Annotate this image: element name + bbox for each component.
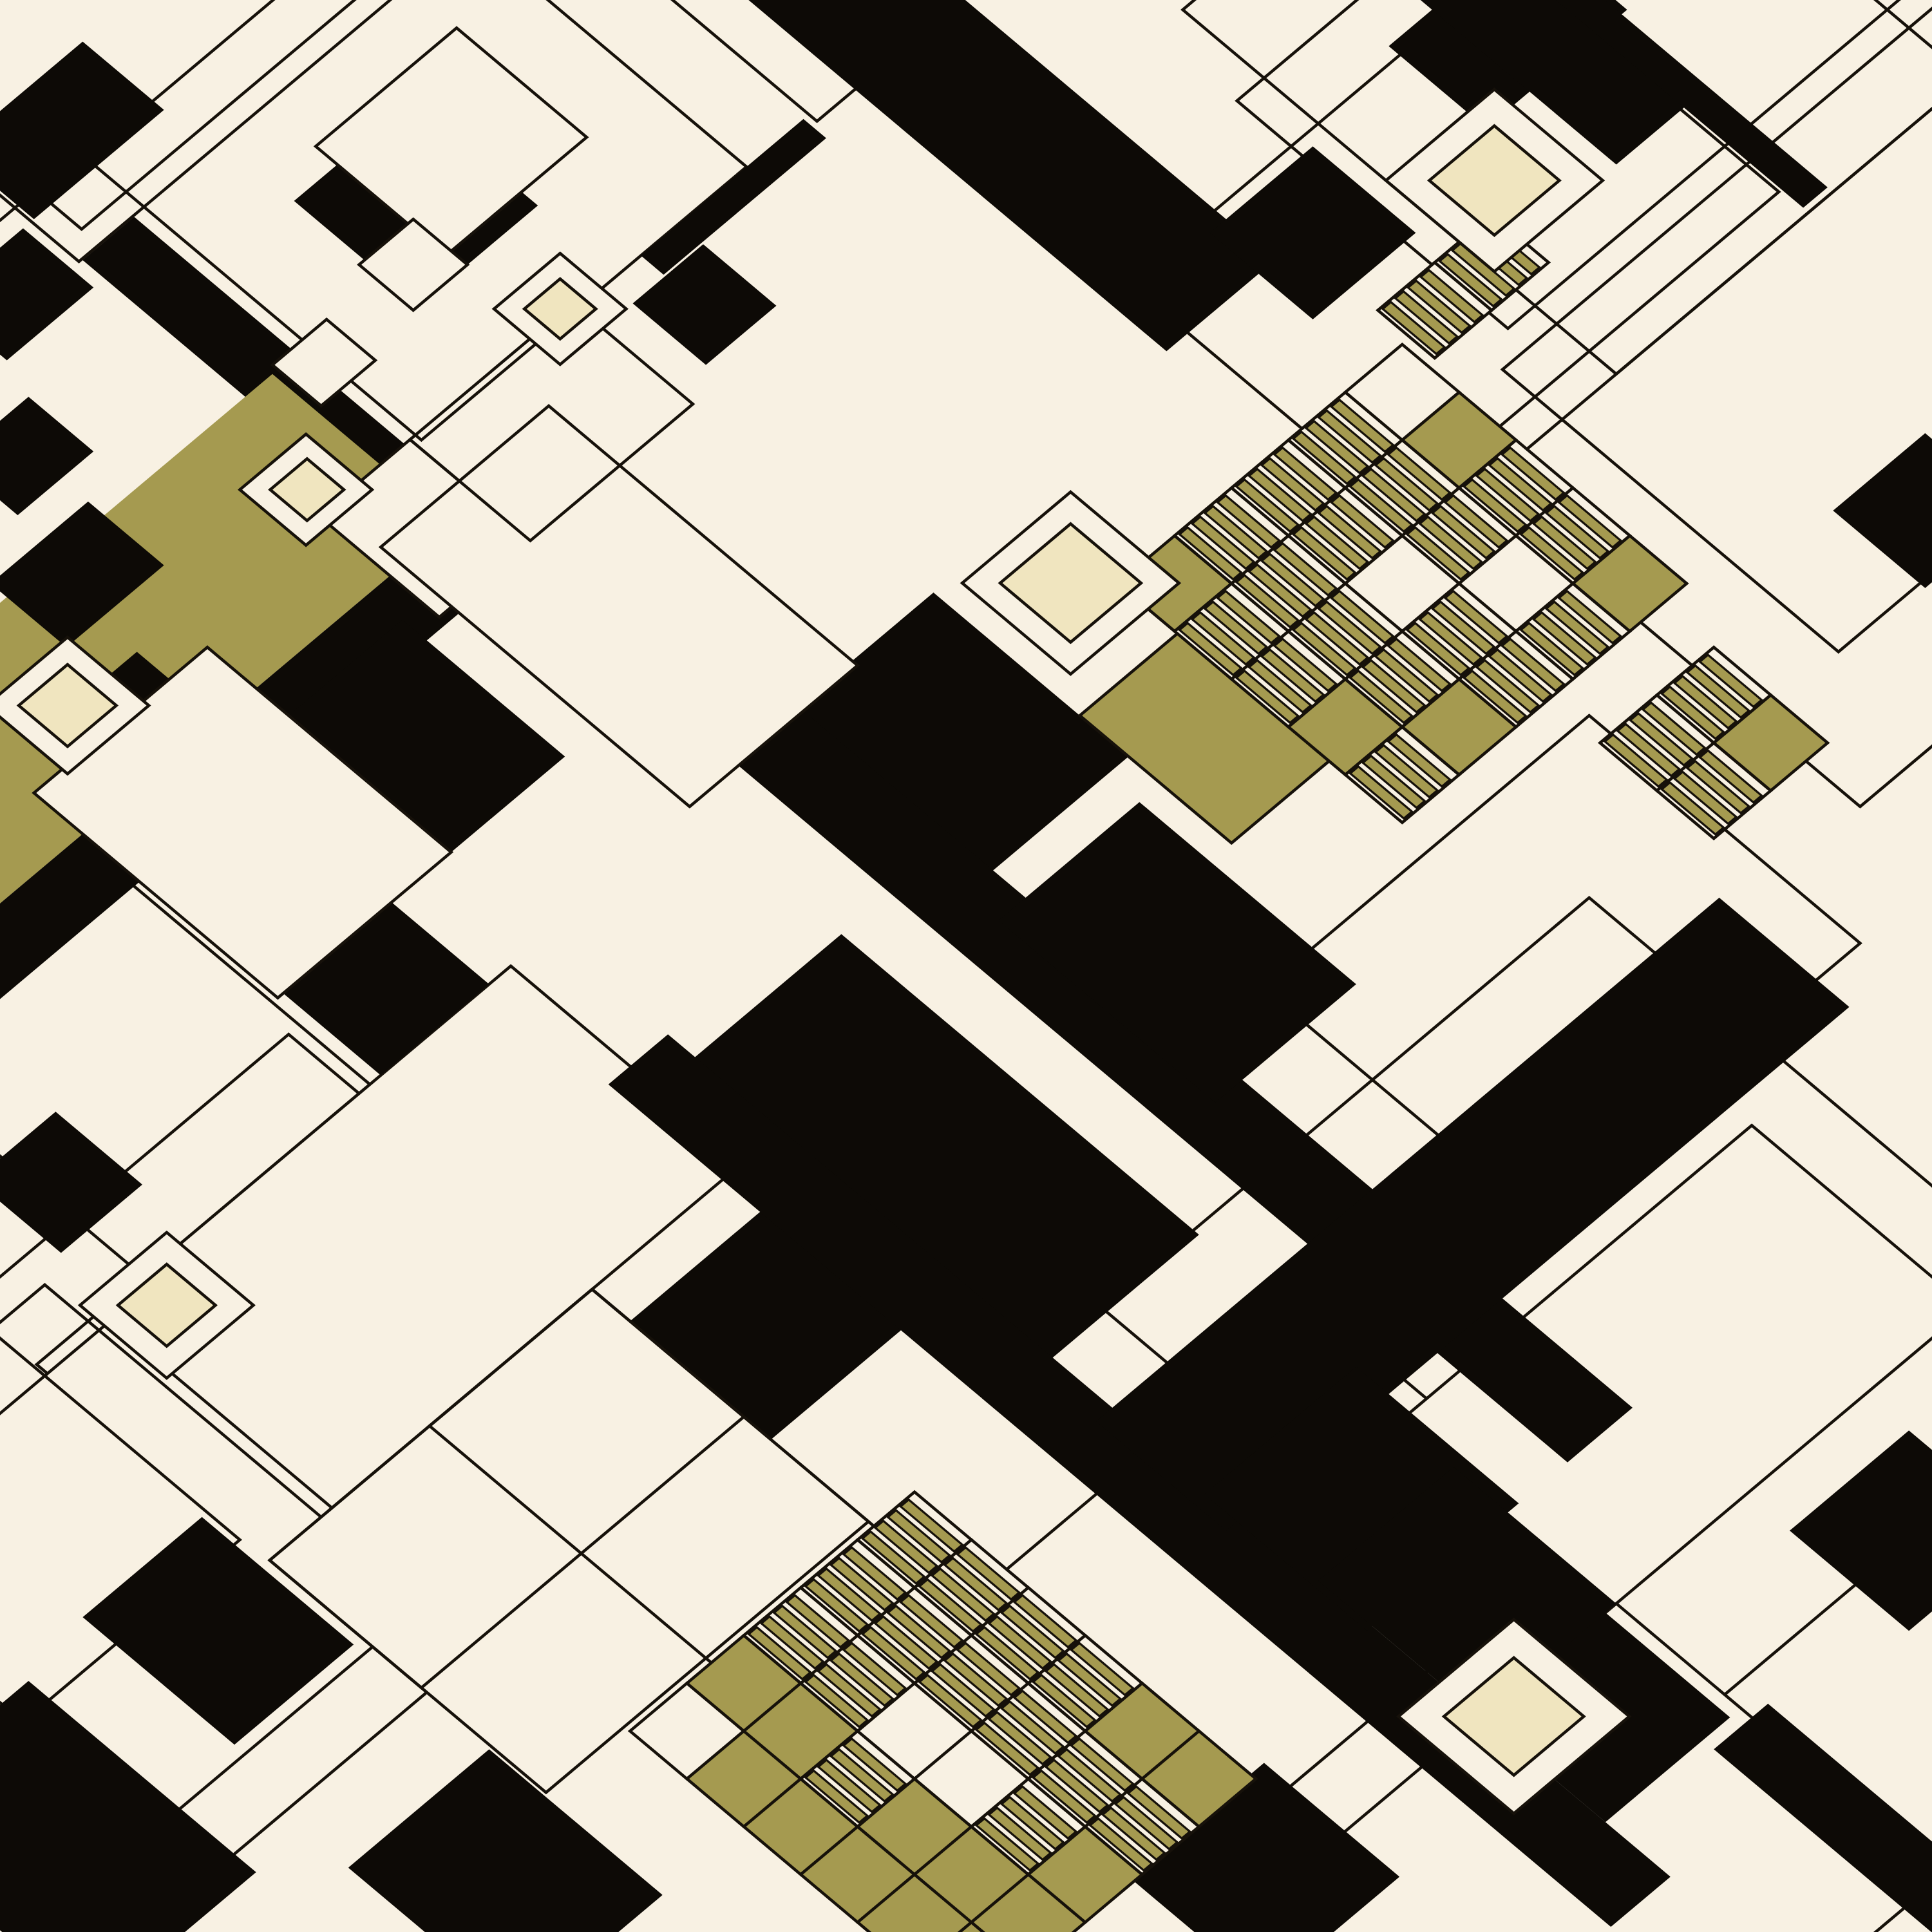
rotated-grid-layer xyxy=(0,0,1932,1932)
abstract-composition-svg xyxy=(0,0,1932,1932)
abstract-art-canvas xyxy=(0,0,1932,1932)
